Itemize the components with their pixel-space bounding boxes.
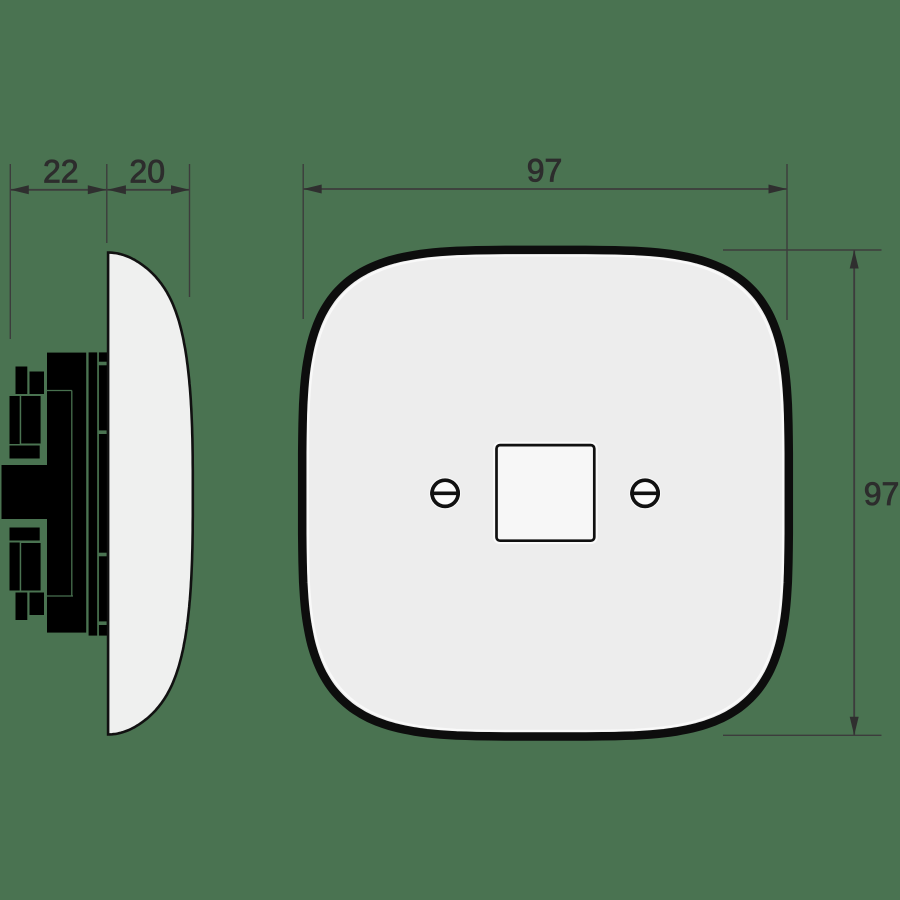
svg-text:97: 97 — [527, 153, 563, 189]
svg-text:20: 20 — [129, 154, 165, 190]
svg-text:22: 22 — [43, 154, 79, 190]
svg-text:97: 97 — [864, 476, 900, 512]
